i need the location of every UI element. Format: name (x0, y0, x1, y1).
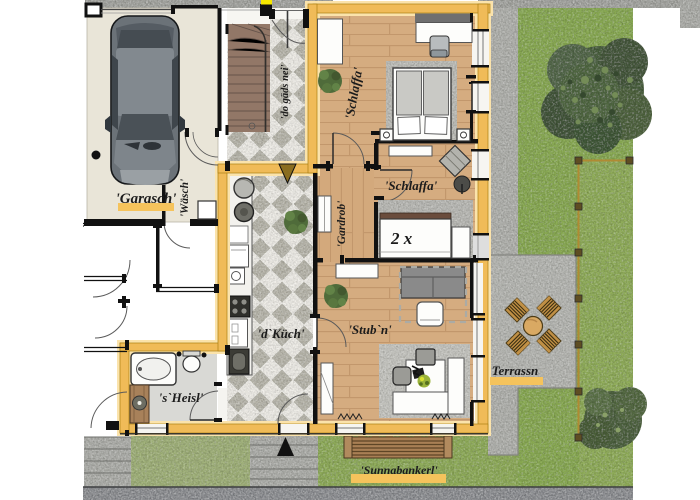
svg-text:'s`Heisl': 's`Heisl' (159, 390, 204, 405)
svg-text:'Stub`n': 'Stub`n' (348, 322, 392, 337)
svg-text:'d`Küch': 'd`Küch' (258, 326, 305, 341)
svg-text:Terrassn: Terrassn (492, 363, 538, 378)
svg-text:'Schlaffa': 'Schlaffa' (385, 178, 438, 193)
svg-text:'Garasch': 'Garasch' (116, 191, 177, 207)
svg-text:2 x: 2 x (390, 229, 413, 248)
svg-text:'Wäsch': 'Wäsch' (179, 179, 191, 217)
svg-text:'Gardrob': 'Gardrob' (336, 201, 348, 248)
svg-text:'do gäds nei': 'do gäds nei' (280, 65, 291, 120)
svg-text:'Sunnabankerl': 'Sunnabankerl' (360, 463, 438, 477)
